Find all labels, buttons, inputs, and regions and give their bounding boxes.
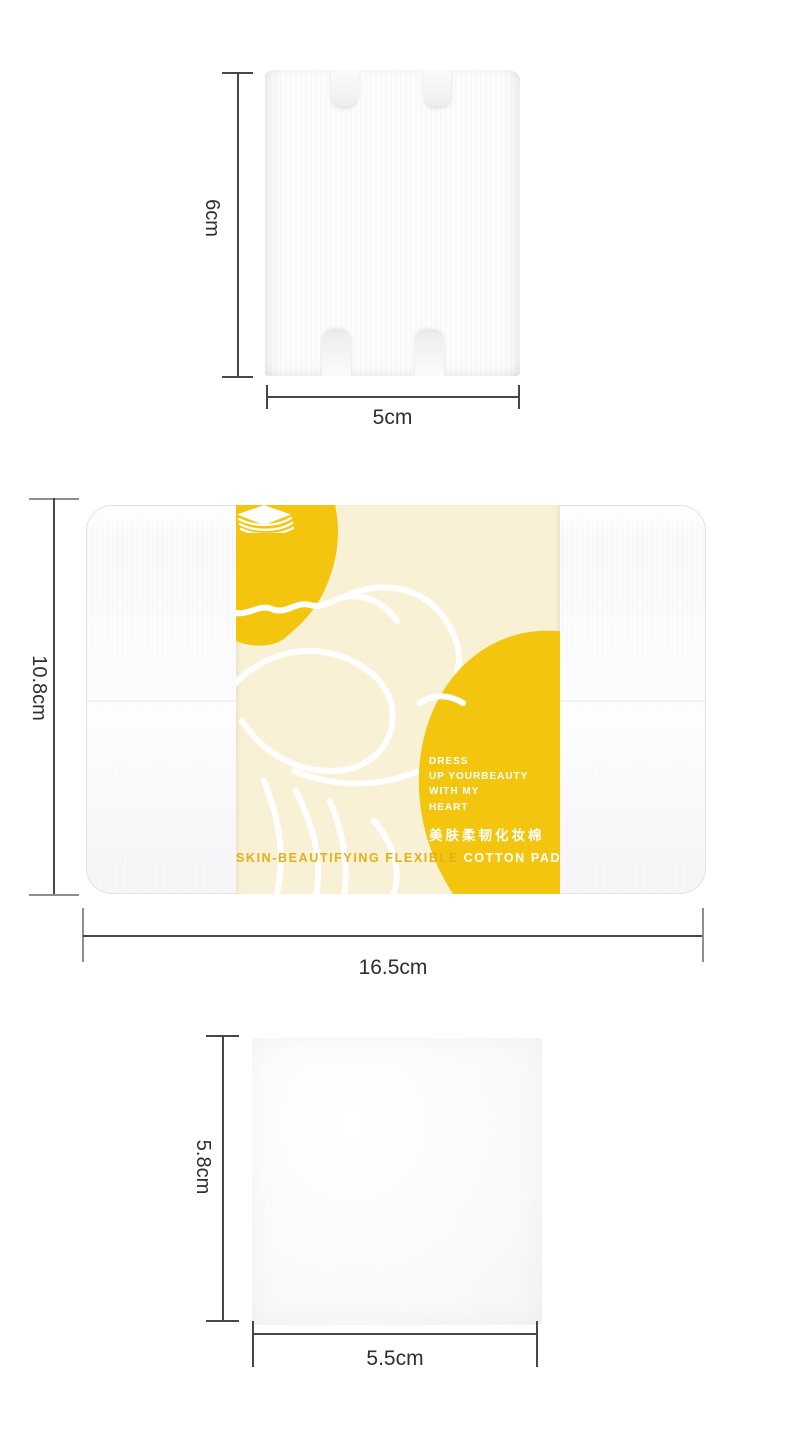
package-label-band: DRESS UP YOURBEAUTY WITH MY HEART 美肤柔韧化妆…: [236, 505, 560, 894]
cotton-pad-stack-icon: [236, 505, 294, 533]
product-name-chinese: 美肤柔韧化妆棉: [429, 824, 545, 844]
width-label-bottom-pad: 5.5cm: [253, 1347, 537, 1371]
dimension-line: [253, 1333, 537, 1335]
product-size-infographic: 6cm 5cm 10.8cm: [0, 0, 790, 1449]
band-slogan: DRESS UP YOURBEAUTY WITH MY HEART: [429, 754, 528, 815]
pad-slit: [322, 332, 351, 376]
cotton-pad-photo-top: [265, 70, 520, 376]
slogan-line: UP YOURBEAUTY: [429, 769, 528, 784]
pad-slit: [415, 332, 444, 376]
height-label-top-pad: 6cm: [195, 188, 223, 248]
dimension-line: [266, 396, 519, 398]
height-label-package: 10.8cm: [22, 643, 50, 733]
yellow-egg-shape: [376, 593, 560, 894]
pad-slit: [424, 70, 451, 106]
cotton-pad-photo-bottom: [252, 1038, 542, 1325]
dimension-cap: [222, 376, 253, 378]
slogan-line: WITH MY: [429, 784, 528, 799]
slogan-line: HEART: [429, 800, 528, 815]
dimension-line: [222, 1035, 224, 1321]
dimension-cap: [29, 894, 79, 896]
dimension-line: [53, 498, 55, 895]
product-name-english-gold: SKIN-BEAUTIFYING FLEXIBLE: [236, 851, 459, 865]
height-label-bottom-pad: 5.8cm: [186, 1122, 214, 1212]
dimension-line: [237, 72, 239, 377]
product-name-english-white: COTTON PAD: [464, 851, 560, 865]
width-label-top-pad: 5cm: [266, 406, 519, 430]
product-name-english: SKIN-BEAUTIFYING FLEXIBLECOTTON PAD: [236, 851, 560, 865]
dimension-line: [83, 935, 703, 937]
slogan-line: DRESS: [429, 754, 528, 769]
dimension-tick: [702, 908, 704, 962]
width-label-package: 16.5cm: [83, 956, 703, 980]
dimension-cap: [206, 1320, 239, 1322]
pad-slit: [331, 70, 358, 106]
